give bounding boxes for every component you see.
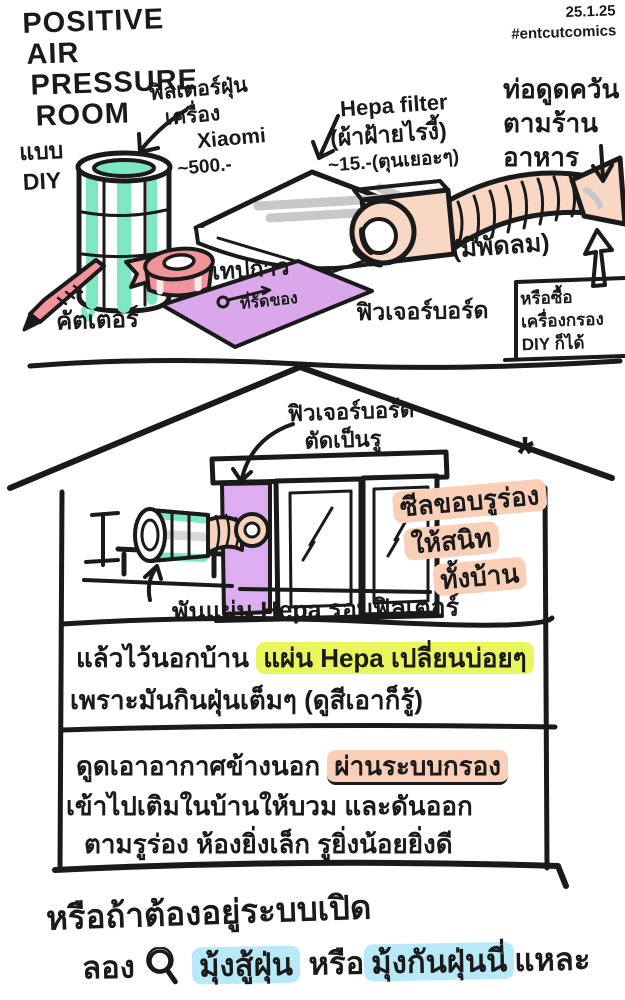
footer-line2: ลอง มุ้งสู้ฝุ่น หรือมุ้งกันฝุ่นนี่แหละ: [82, 934, 591, 993]
cutter-label: คัตเตอร์: [55, 299, 139, 341]
board-cut-line: ตัดเป็นรู: [304, 424, 416, 456]
section-divider: [30, 360, 620, 367]
comic-page: POSITIVE AIR PRESSURE ROOM 25.1.25 #entc…: [0, 0, 625, 1000]
footer-mid-word: หรือ: [308, 946, 364, 982]
diy-label: แบบ DIY: [18, 135, 65, 197]
buy-box-line: หรือซื้อ: [520, 285, 604, 311]
note2-line3: ตามรูร่อง ห้องยิ่งเล็ก รูยิ่งน้อยยิ่งดี: [84, 824, 453, 865]
board-cut-label: ฟิวเจอร์บอร์ด ตัดเป็นรู: [287, 396, 416, 456]
note1-prefix: แล้วไว้นอกบ้าน: [76, 643, 256, 673]
asterisk: *: [516, 426, 534, 480]
note1-line2: เพราะมันกินฝุ่นเต็มๆ (ดูสีเอาก็รู้): [70, 680, 423, 721]
duct-label-line: ตามร้าน: [503, 106, 619, 140]
diy-line: DIY: [22, 165, 66, 197]
buy-box-text: หรือซื้อ เครื่องกรอง DIY ก็ได้: [520, 285, 605, 357]
date-block: 25.1.25 #entcutcomics: [459, 1, 616, 46]
magnifier-icon: [145, 947, 182, 988]
fan-note: (มีพัดลม): [451, 223, 551, 270]
duct-label-line: อาหาร: [503, 140, 619, 174]
board-cut-line: ฟิวเจอร์บอร์ด: [287, 396, 415, 428]
duct-label: ท่อดูดควัน ตามร้าน อาหาร: [503, 72, 619, 174]
footer-highlight-2: มุ้งกันฝุ่นนี่: [364, 942, 515, 982]
indoor-filter-drawing: [135, 509, 208, 561]
note2-line1: ดูดเอาอากาศข้างนอก ผ่านระบบกรอง: [76, 746, 508, 787]
wrap-label: พันแผ่น Hepa รอบฟิลเตอร์: [172, 587, 460, 632]
tape-label: เทปกาว: [211, 249, 291, 290]
note2-prefix: ดูดเอาอากาศข้างนอก: [76, 751, 327, 781]
footer-highlight-1: มุ้งสู้ฝุ่น: [192, 946, 300, 985]
seal-note: ซีลขอบรูร่อง ให้สนิท ทั้งบ้าน: [391, 476, 554, 603]
note1-highlight: แผ่น Hepa เปลี่ยนบ่อยๆ: [256, 642, 533, 674]
duct-label-line: ท่อดูดควัน: [503, 72, 619, 106]
buy-box-line: DIY ก็ได้: [521, 331, 605, 357]
diy-line: แบบ: [18, 135, 64, 167]
futureboard-label: ฟิวเจอร์บอร์ด: [356, 293, 489, 331]
footer-line1: หรือถ้าต้องอยู่ระบบเปิด: [45, 880, 372, 944]
note2-line2: เข้าไปเติมในบ้านให้บวม และดันออก: [66, 786, 473, 827]
hepa-label: Hepa filter (ผ้าฝ้ายไรงี้) ~15.-(ตุนเยอะ…: [323, 88, 460, 181]
seal-note-line: ให้สนิท: [403, 521, 500, 561]
buy-box-line: เครื่องกรอง: [521, 308, 605, 334]
note2-highlight: ผ่านระบบกรอง: [327, 750, 508, 785]
footer-try-word: ลอง: [82, 950, 135, 986]
note1-line1: แล้วไว้นอกบ้าน แผ่น Hepa เปลี่ยนบ่อยๆ: [76, 638, 534, 679]
filter-label: ฟิลเตอร์ฝุ่น เครื่อง Xiaomi ~500.-: [148, 71, 269, 184]
footer-suffix: แหละ: [514, 942, 591, 978]
